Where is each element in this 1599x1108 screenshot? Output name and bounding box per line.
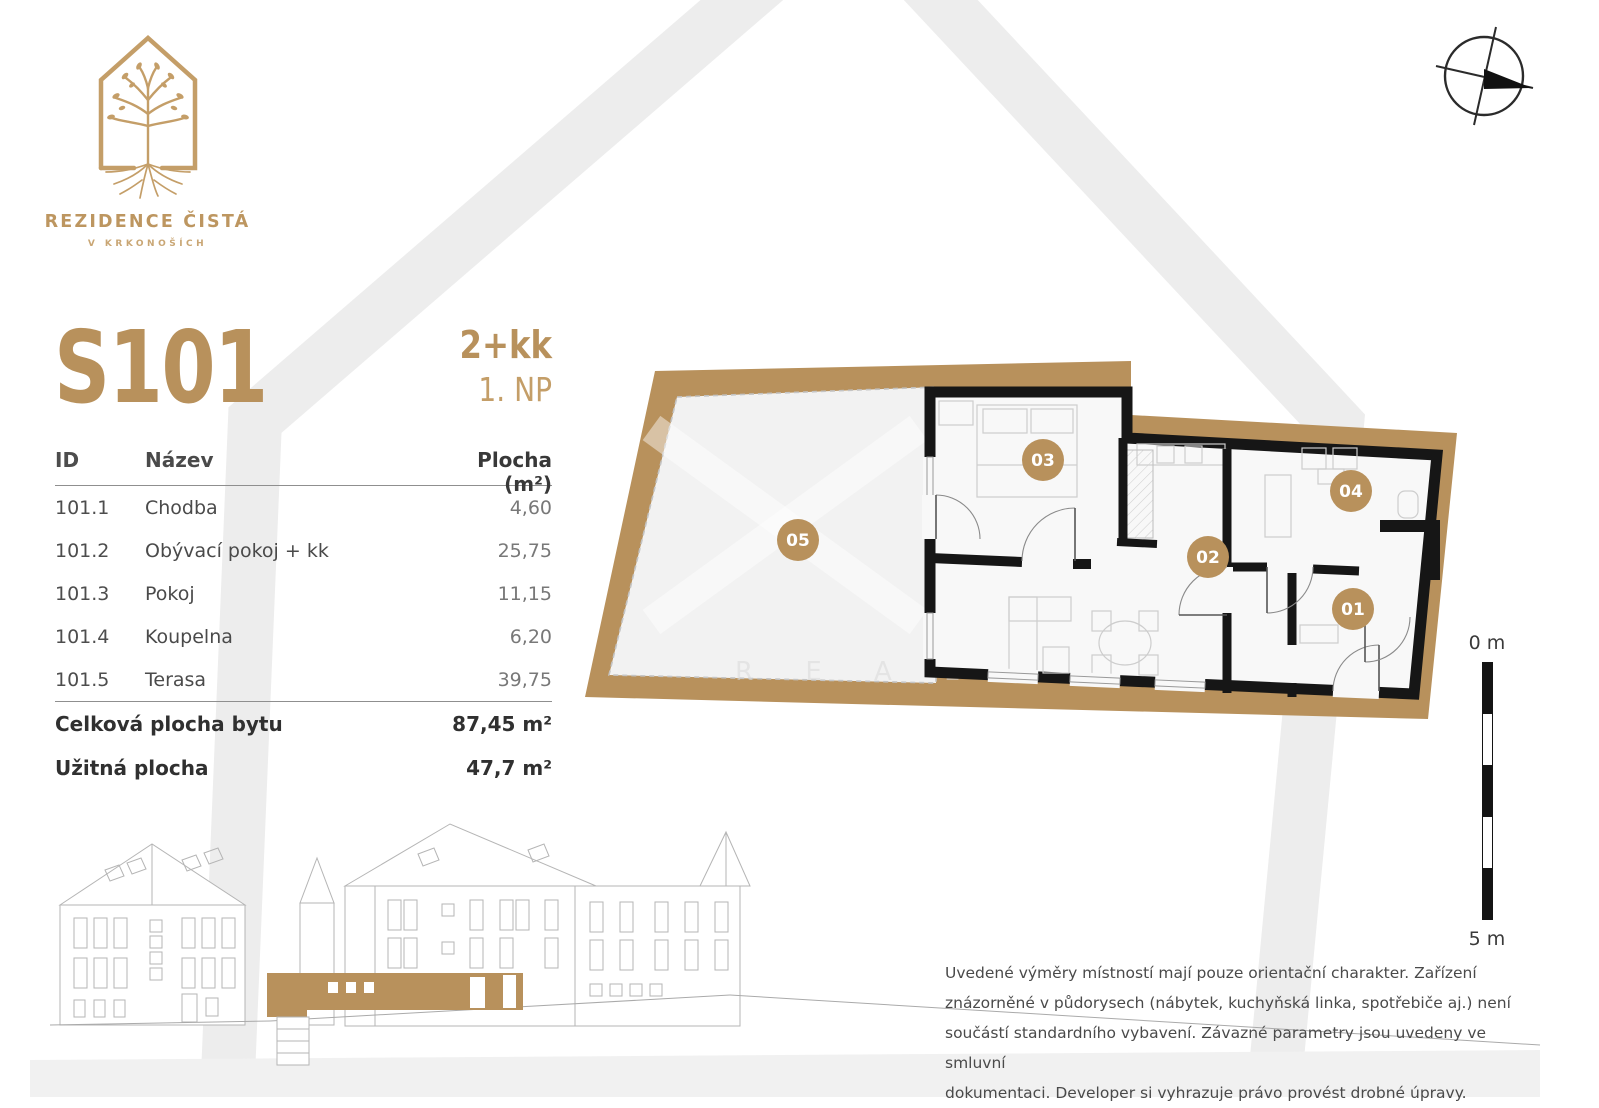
table-row: 101.1 Chodba 4,60 bbox=[55, 486, 552, 529]
table-row: 101.2 Obývací pokoj + kk 25,75 bbox=[55, 529, 552, 572]
disclaimer-text: Uvedené výměry místností mají pouze orie… bbox=[945, 958, 1545, 1108]
row-area: 39,75 bbox=[442, 669, 552, 691]
row-name: Terasa bbox=[145, 669, 442, 691]
row-area: 4,60 bbox=[442, 497, 552, 519]
total-area-row: Celková plocha bytu 87,45 m² bbox=[55, 702, 552, 746]
total-area-label: Celková plocha bytu bbox=[55, 712, 442, 736]
room-number: 04 bbox=[1339, 482, 1363, 502]
disclaimer-line: znázorněné v půdorysech (nábytek, kuchyň… bbox=[945, 988, 1545, 1018]
row-id: 101.4 bbox=[55, 626, 145, 648]
row-id: 101.3 bbox=[55, 583, 145, 605]
row-area: 11,15 bbox=[442, 583, 552, 605]
floor-plan-drawing: R E A L bbox=[565, 345, 1475, 745]
logo-house-tree-icon bbox=[68, 22, 228, 204]
room-label-02: 02 bbox=[1187, 536, 1229, 578]
closet-hatch bbox=[1127, 450, 1153, 538]
table-row: 101.5 Terasa 39,75 bbox=[55, 658, 552, 701]
unit-floor: 1. NP bbox=[363, 370, 552, 409]
table-header-row: ID Název Plocha (m²) bbox=[55, 448, 552, 472]
scale-bar: 0 m 5 m bbox=[1452, 632, 1522, 950]
left-building bbox=[60, 844, 245, 1025]
table-row: 101.3 Pokoj 11,15 bbox=[55, 572, 552, 615]
row-name: Koupelna bbox=[145, 626, 442, 648]
logo-tree bbox=[112, 68, 184, 164]
room-label-01: 01 bbox=[1332, 588, 1374, 630]
row-id: 101.5 bbox=[55, 669, 145, 691]
brand-name: REZIDENCE ČISTÁ bbox=[40, 212, 255, 232]
brand-tagline: V KRKONOŠÍCH bbox=[40, 239, 255, 249]
unit-disposition: 2+kk bbox=[363, 326, 552, 366]
usable-area-label: Užitná plocha bbox=[55, 756, 442, 780]
col-header-area: Plocha (m²) bbox=[442, 448, 552, 472]
room-number: 03 bbox=[1031, 451, 1055, 471]
disclaimer-line: dokumentaci. Developer si vyhrazuje práv… bbox=[945, 1078, 1545, 1108]
shaft-wall bbox=[1426, 520, 1440, 580]
room-label-05: 05 bbox=[777, 519, 819, 561]
room-number: 01 bbox=[1341, 600, 1365, 620]
row-area: 6,20 bbox=[442, 626, 552, 648]
room-label-04: 04 bbox=[1330, 470, 1372, 512]
scale-top-label: 0 m bbox=[1452, 632, 1522, 654]
room-label-03: 03 bbox=[1022, 439, 1064, 481]
row-name: Obývací pokoj + kk bbox=[145, 540, 442, 562]
col-header-name: Název bbox=[145, 448, 442, 472]
room-area-table: ID Název Plocha (m²) 101.1 Chodba 4,60 1… bbox=[55, 448, 552, 790]
floor-plan: R E A L bbox=[565, 345, 1475, 749]
compass-north-icon bbox=[1420, 16, 1550, 138]
brand-logo: REZIDENCE ČISTÁ V KRKONOŠÍCH bbox=[40, 22, 255, 249]
unit-meta: 2+kk 1. NP bbox=[330, 326, 552, 409]
row-name: Pokoj bbox=[145, 583, 442, 605]
col-header-id: ID bbox=[55, 448, 145, 472]
basement-stairs bbox=[277, 1017, 309, 1065]
row-area: 25,75 bbox=[442, 540, 552, 562]
disclaimer-line: Uvedené výměry místností mají pouze orie… bbox=[945, 958, 1545, 988]
disclaimer-line: součástí standardního vybavení. Závazné … bbox=[945, 1018, 1545, 1078]
room-number: 05 bbox=[786, 531, 810, 551]
usable-area-row: Užitná plocha 47,7 m² bbox=[55, 746, 552, 790]
unit-code: S101 bbox=[54, 318, 267, 418]
table-row: 101.4 Koupelna 6,20 bbox=[55, 615, 552, 658]
row-name: Chodba bbox=[145, 497, 442, 519]
scale-bar-graphic bbox=[1482, 662, 1493, 920]
row-id: 101.2 bbox=[55, 540, 145, 562]
row-id: 101.1 bbox=[55, 497, 145, 519]
scale-bottom-label: 5 m bbox=[1452, 928, 1522, 950]
room-number: 02 bbox=[1196, 548, 1220, 568]
usable-area-value: 47,7 m² bbox=[442, 756, 552, 780]
total-area-value: 87,45 m² bbox=[442, 712, 552, 736]
